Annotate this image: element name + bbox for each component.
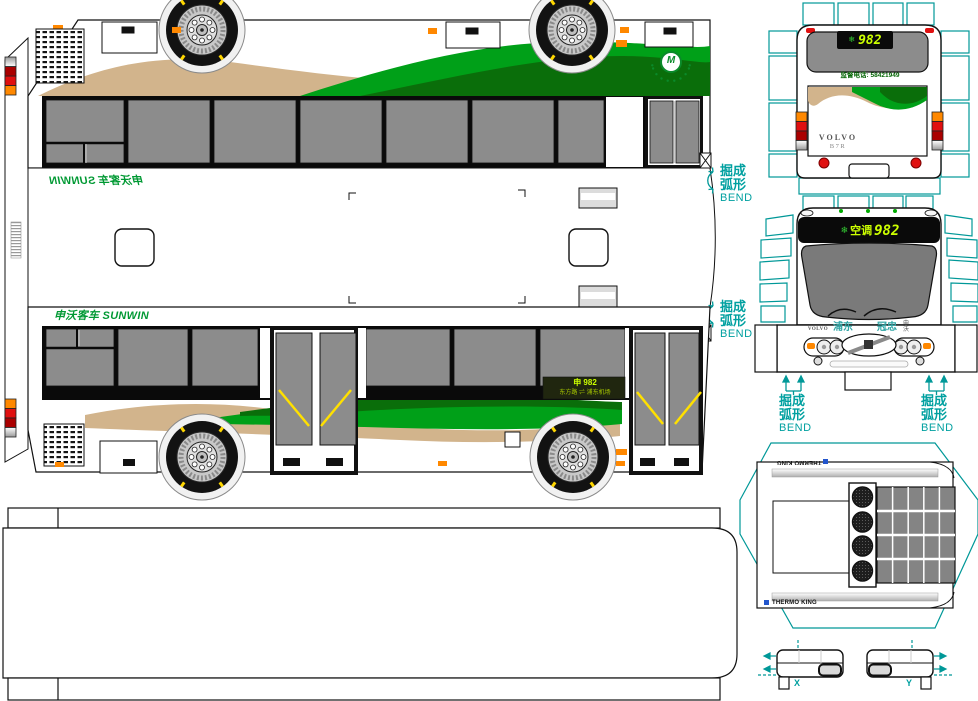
bend-label-roof-bottom: 掘成 弧形 BEND [720,300,753,341]
rear-marker-light-right [925,28,934,33]
rear-model-text: B7R [810,144,866,151]
front-windshield [802,243,937,320]
papercraft-lineart [0,0,978,701]
front-corner-light-left [801,210,813,216]
papercraft-sheet: 申沃客车 SUNWIN 申沃客车 SUNWIN M 申 982 东方路 ⇌ 浦东… [0,0,978,701]
rear-led-number: 982 [858,34,881,47]
rear-door [270,326,358,475]
route-sign-line2: 东方路 ⇌ 浦东机场 [544,390,626,396]
bumper-side-tab-left [755,325,777,372]
fog-light-right [916,357,924,365]
lower-wheel-rear [159,414,245,500]
front-led-text: ❄ 空调 982 [824,222,916,239]
volvo-grille [842,334,896,356]
ac-vent-grid [877,487,955,583]
front-door [629,326,703,475]
rear-reflector-right [911,158,921,168]
fuel-cap [505,432,520,447]
thermo-king-text-top: THERMO KING [775,459,823,465]
lower-wheel-front [530,414,616,500]
operator-right: 冠忠 [877,323,897,333]
front-led-number: 982 [874,224,899,238]
part-label-y: Y [902,679,916,688]
ac-strip-top [772,469,938,477]
route-sign-line1: 申 982 [544,379,626,387]
headlight-cluster-right [894,338,934,356]
brand-text-upper-side: 申沃客车 SUNWIN [54,176,144,187]
brand-text-lower-side: 申沃客车 SUNWIN [54,311,144,322]
rear-engine-grille-upper [36,29,84,83]
rear-make-text: VOLVO [810,134,866,142]
floor-panel [3,508,737,700]
rear-reflector-left [819,158,829,168]
front-corner-light-right [925,210,937,216]
rear-led-text: ❄ 982 [836,32,894,48]
lower-side-view [5,307,710,500]
snowflake-icon: ❄ [841,226,849,235]
headlight-cluster-left [804,338,844,356]
bend-label-front-left: 掘成 弧形 BEND [779,394,812,435]
rear-engine-grille-lower [44,424,84,466]
front-make-text: VOLVO [805,327,831,332]
service-hatch [100,441,157,473]
company-logo-letter: M [665,56,677,66]
bumper-trim-strip [830,361,908,367]
thermo-king-logo-bottom [764,600,769,605]
operator-left: 浦东 [833,323,853,333]
bumper-bottom-tab [845,372,891,390]
ac-fan-column [849,483,876,587]
upper-window-band [42,96,703,168]
fog-light-left [814,357,822,365]
roof-hatch-2 [569,229,608,266]
rear-license-plate [849,164,889,178]
hotline-text: 监督电话: 58421949 [810,73,930,80]
roof-hatch-1 [115,229,154,266]
bend-label-roof-top: 掘成 弧形 BEND [720,164,753,205]
front-operator-text: 浦东 冠忠 [833,323,897,333]
rear-step-grille [11,222,21,258]
ac-inner-panel [773,501,849,573]
bumper-side-tab-right [955,325,977,372]
front-builder-text: 申沃 [903,321,911,333]
driver-door [645,96,703,168]
thermo-king-logo-top [823,459,828,464]
front-led-ac: 空调 [850,225,872,236]
snowflake-icon: ❄ [848,36,855,44]
thermo-king-text-bottom: THERMO KING [772,600,817,606]
bend-label-front-right: 掘成 弧形 BEND [921,394,954,435]
part-label-x: X [790,679,804,688]
